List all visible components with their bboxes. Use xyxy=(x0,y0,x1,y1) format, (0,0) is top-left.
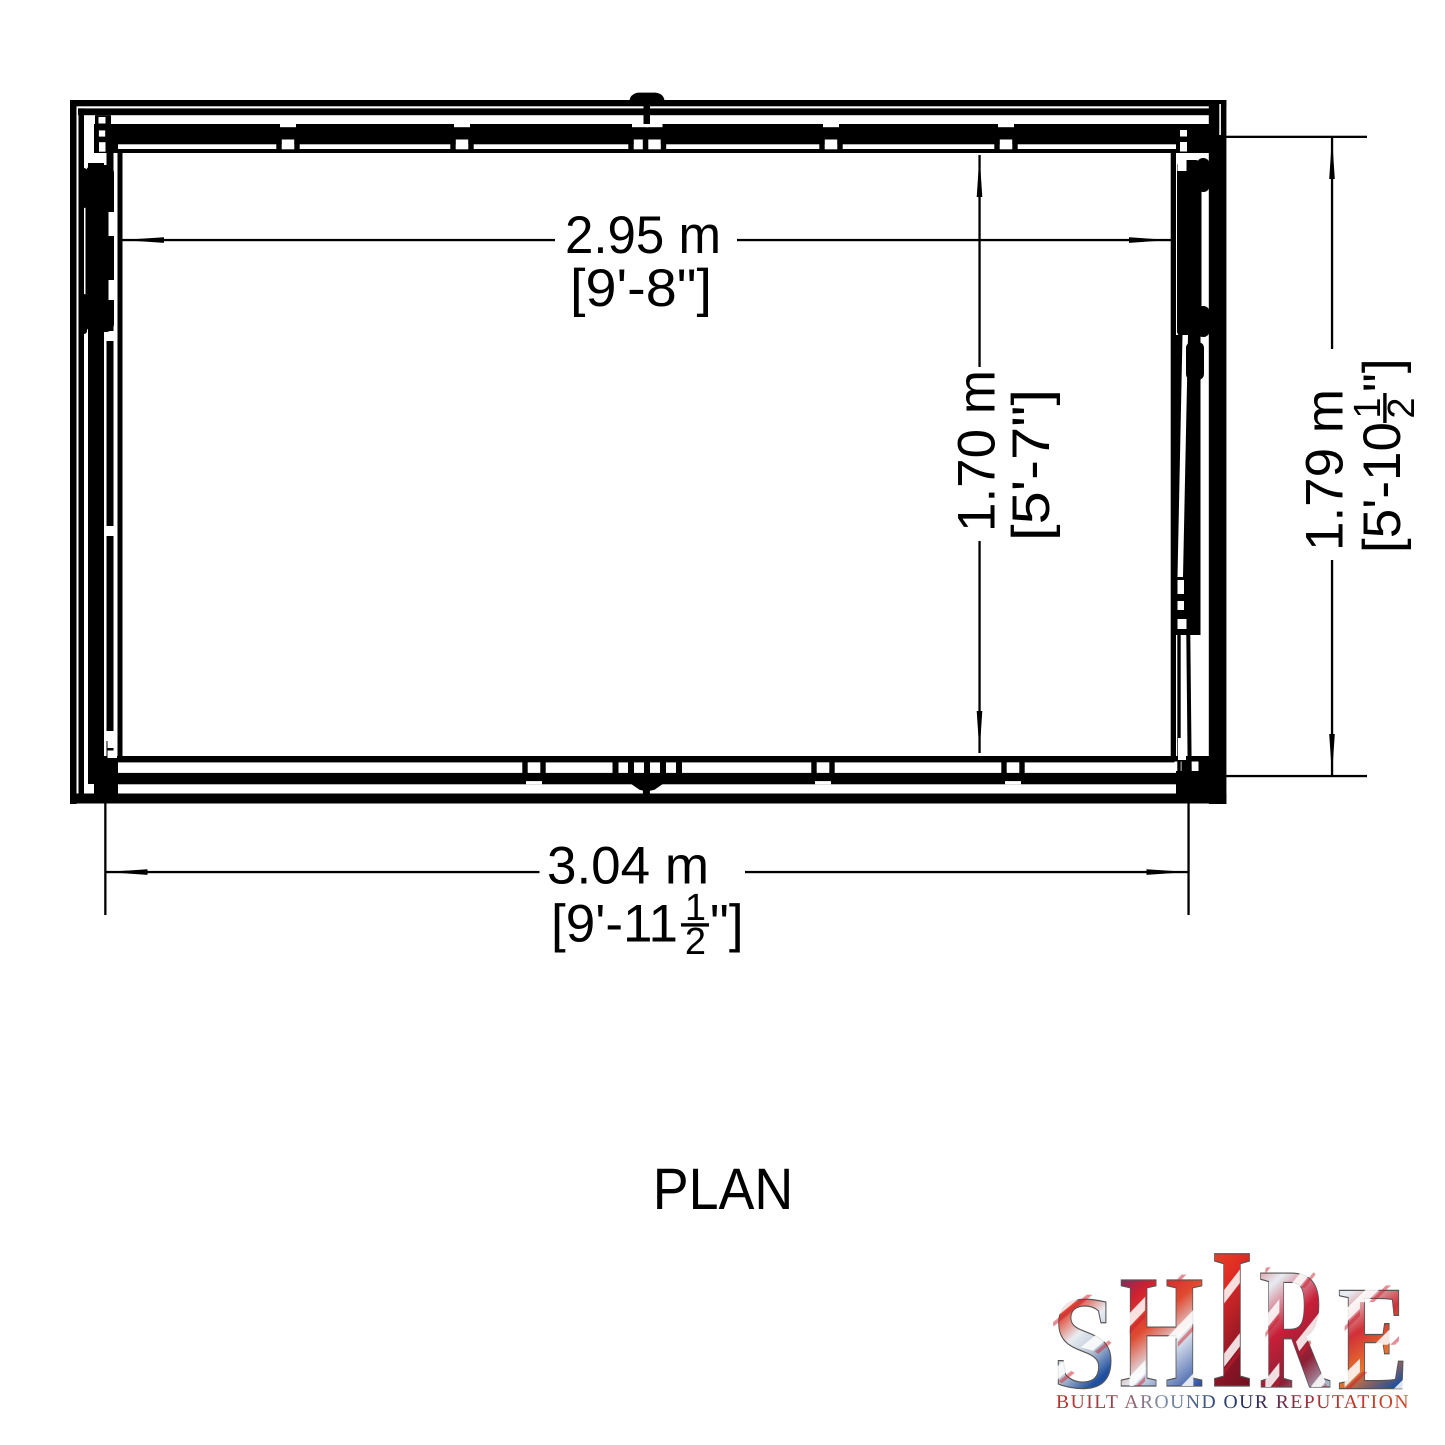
svg-text:PLAN: PLAN xyxy=(653,1157,794,1222)
svg-text:"]: "] xyxy=(710,895,744,954)
svg-text:BUILT AROUND OUR REPUTATION: BUILT AROUND OUR REPUTATION xyxy=(1056,1392,1410,1413)
svg-text:[9'-11: [9'-11 xyxy=(551,895,678,954)
svg-text:1.70 m: 1.70 m xyxy=(948,370,1007,532)
svg-text:[5'-10: [5'-10 xyxy=(1353,422,1412,553)
svg-text:2: 2 xyxy=(1381,397,1423,418)
svg-text:1.79 m: 1.79 m xyxy=(1296,389,1355,551)
svg-text:"]: "] xyxy=(1353,358,1412,392)
svg-text:[9'-8"]: [9'-8"] xyxy=(570,259,712,318)
svg-text:2.95 m: 2.95 m xyxy=(565,206,721,265)
svg-text:[5'-7"]: [5'-7"] xyxy=(1002,389,1061,541)
svg-text:2: 2 xyxy=(685,921,706,963)
